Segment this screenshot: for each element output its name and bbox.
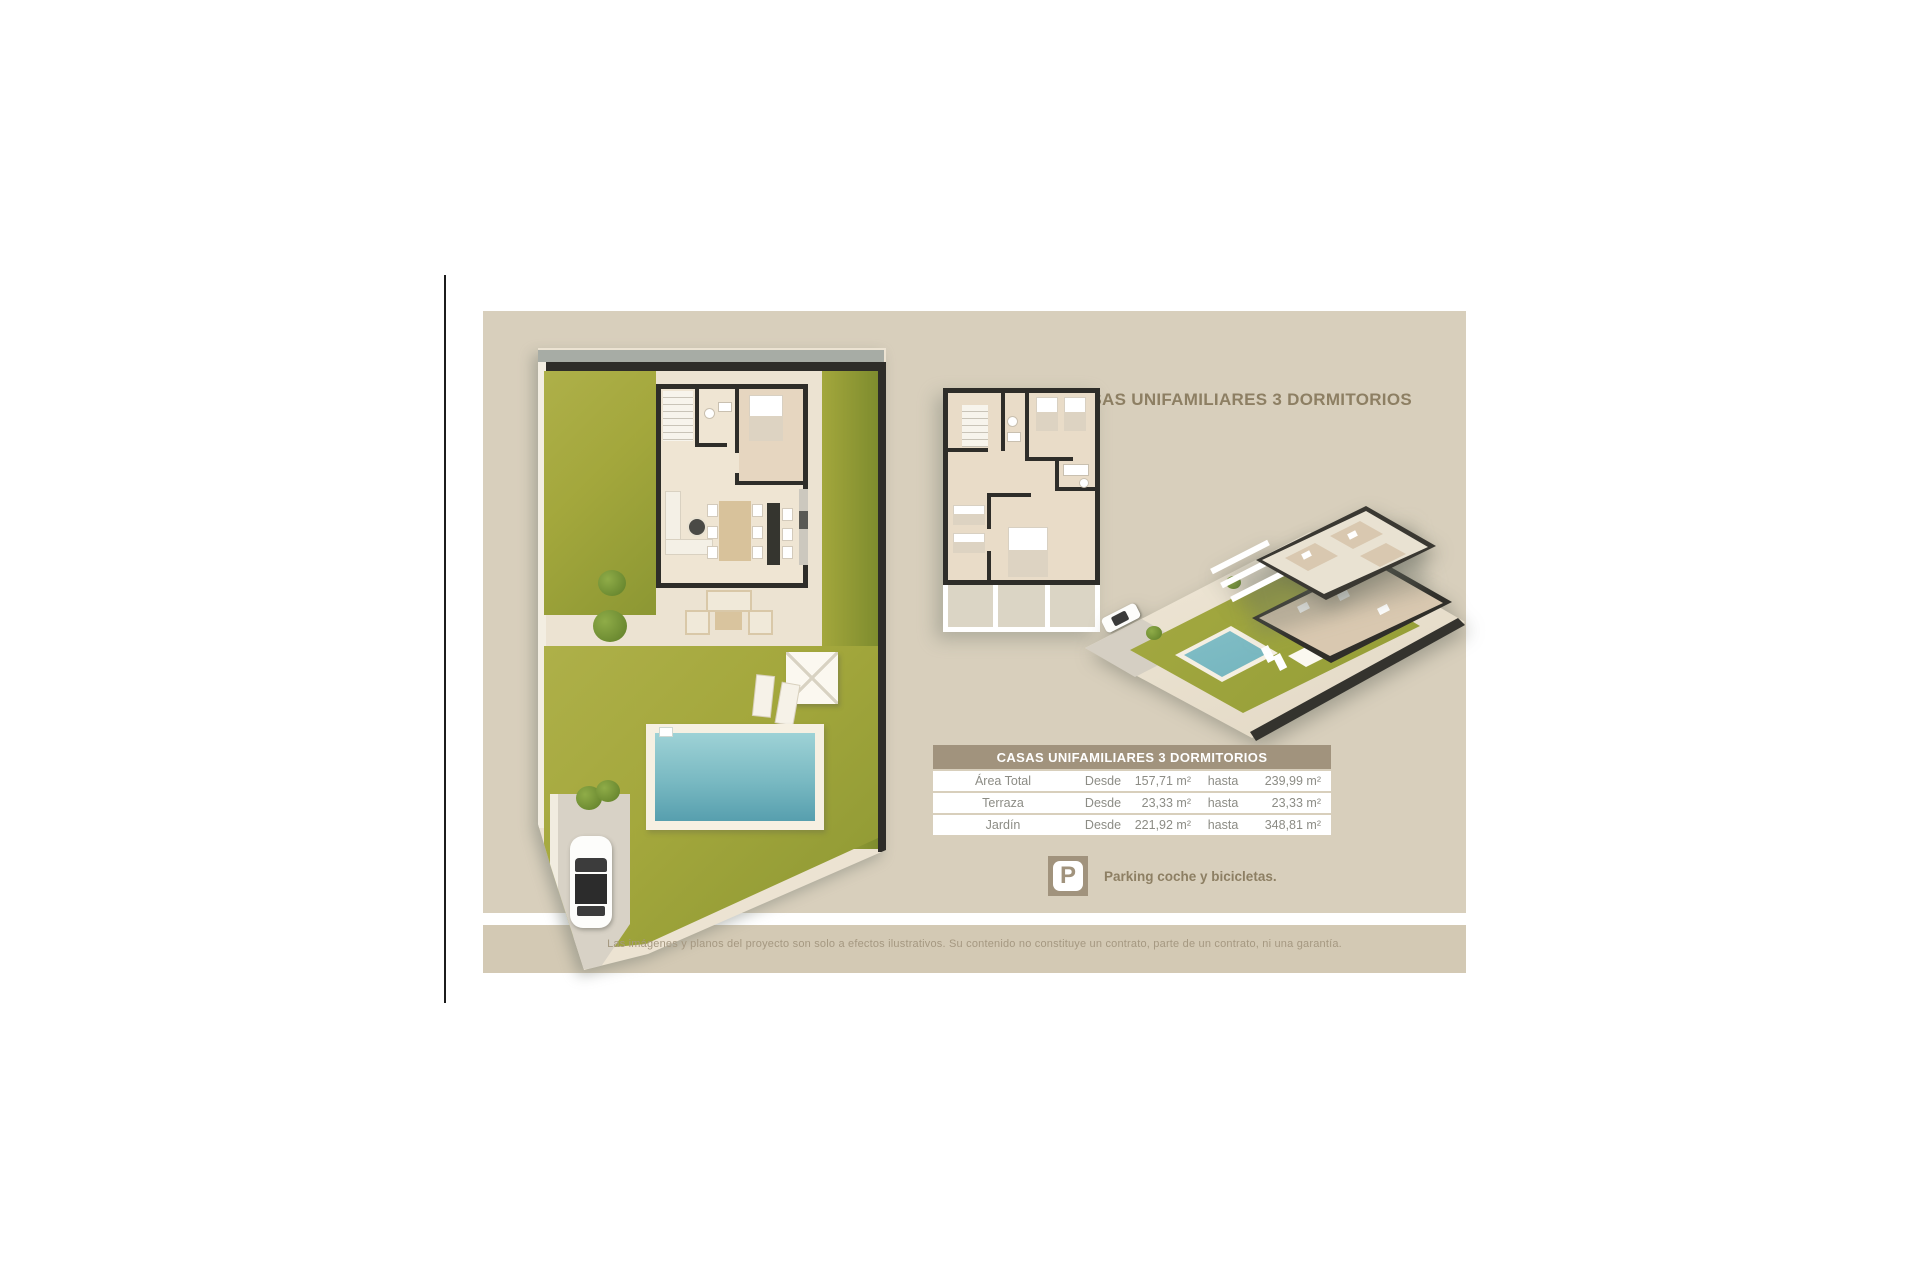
balcony-railing xyxy=(943,627,1100,632)
single-bed xyxy=(1064,397,1086,431)
from-label: Desde xyxy=(1073,818,1133,832)
parking-label: Parking coche y bicicletas. xyxy=(1104,869,1277,884)
house-outline xyxy=(656,384,808,588)
sink-icon xyxy=(719,403,731,411)
to-value: 348,81 m² xyxy=(1253,818,1331,832)
outdoor-table xyxy=(715,612,742,630)
iso-upper-floor xyxy=(1080,500,1480,750)
upper-floor-plan-illustration xyxy=(943,388,1100,638)
table-row: Terraza Desde 23,33 m² hasta 23,33 m² xyxy=(933,793,1331,813)
balcony xyxy=(943,585,1100,627)
single-bed xyxy=(1036,397,1058,431)
bush xyxy=(593,610,627,642)
to-value: 239,99 m² xyxy=(1253,774,1331,788)
bush xyxy=(598,570,626,596)
pool xyxy=(646,724,824,830)
stairs xyxy=(663,391,693,441)
from-value: 23,33 m² xyxy=(1133,796,1193,810)
spec-table: CASAS UNIFAMILIARES 3 DORMITORIOS Área T… xyxy=(933,745,1331,835)
plot-wall-right xyxy=(878,362,886,852)
toilet-icon xyxy=(1080,479,1088,487)
rug xyxy=(687,517,707,537)
single-bed xyxy=(953,533,985,553)
sofa xyxy=(665,539,713,555)
table-row: Jardín Desde 221,92 m² hasta 348,81 m² xyxy=(933,815,1331,835)
pool-ladder-icon xyxy=(660,728,672,736)
outdoor-chair xyxy=(687,612,708,633)
from-label: Desde xyxy=(1073,796,1133,810)
spec-table-header: CASAS UNIFAMILIARES 3 DORMITORIOS xyxy=(933,745,1331,769)
from-value: 221,92 m² xyxy=(1133,818,1193,832)
table-row: Área Total Desde 157,71 m² hasta 239,99 … xyxy=(933,771,1331,791)
kitchen-appliance xyxy=(799,511,808,529)
outdoor-chair xyxy=(750,612,771,633)
to-label: hasta xyxy=(1193,774,1253,788)
parking-icon: P xyxy=(1048,856,1088,896)
from-label: Desde xyxy=(1073,774,1133,788)
double-bed xyxy=(1008,527,1048,577)
to-label: hasta xyxy=(1193,796,1253,810)
stairs xyxy=(962,405,988,447)
driveway-edge xyxy=(550,794,558,962)
row-label: Terraza xyxy=(933,796,1073,810)
toilet-icon xyxy=(1008,417,1017,426)
single-bed xyxy=(953,505,985,525)
toilet-icon xyxy=(705,409,714,418)
iso-view-illustration xyxy=(1080,500,1480,750)
to-label: hasta xyxy=(1193,818,1253,832)
bathtub-icon xyxy=(1064,465,1088,475)
parking-note: P Parking coche y bicicletas. xyxy=(1048,856,1277,896)
to-value: 23,33 m² xyxy=(1253,796,1331,810)
ground-floor-plan-illustration xyxy=(538,348,892,972)
plot-terrain xyxy=(538,348,886,972)
dining-table xyxy=(719,501,751,561)
disclaimer-text: Las imágenes y planos del proyecto son s… xyxy=(483,938,1466,950)
from-value: 157,71 m² xyxy=(1133,774,1193,788)
plot-wall-top xyxy=(540,362,886,371)
bush xyxy=(596,780,620,802)
house-floor xyxy=(661,389,803,583)
kitchen-island xyxy=(767,503,780,565)
outdoor-sofa xyxy=(708,592,750,610)
double-bed xyxy=(749,395,783,441)
upper-floor xyxy=(943,388,1100,585)
wall-shadow xyxy=(538,350,884,362)
left-accent-line xyxy=(444,275,446,1003)
row-label: Área Total xyxy=(933,774,1073,788)
sink-icon xyxy=(1008,433,1020,441)
car-top-view xyxy=(570,836,612,928)
row-label: Jardín xyxy=(933,818,1073,832)
